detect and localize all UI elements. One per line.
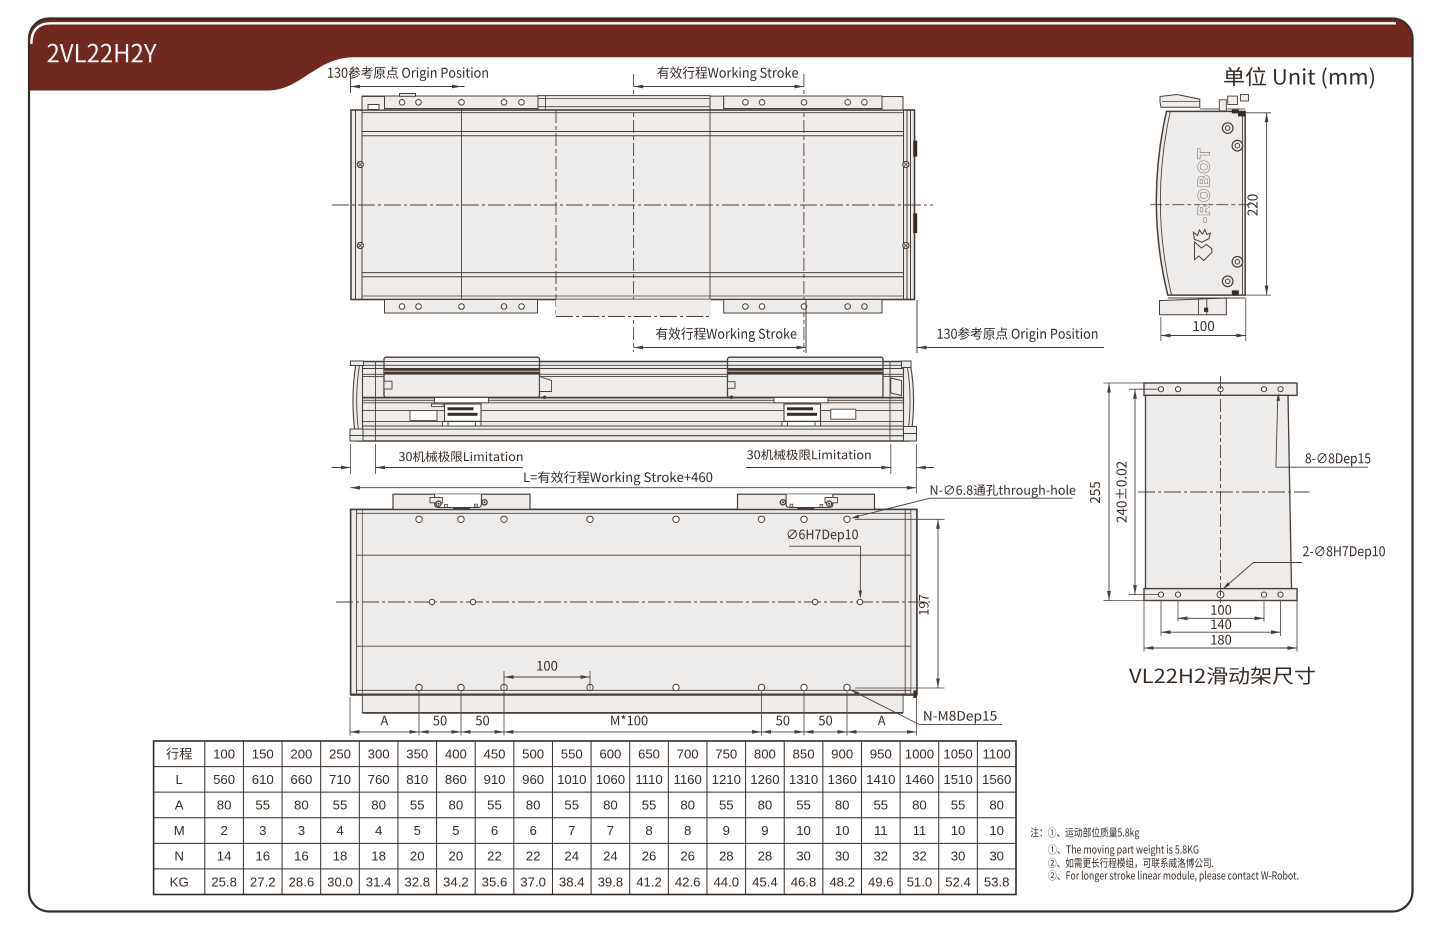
- svg-text:80: 80: [217, 798, 232, 813]
- svg-text:80: 80: [294, 798, 309, 813]
- svg-text:100: 100: [213, 746, 235, 761]
- svg-text:45.4: 45.4: [752, 874, 778, 889]
- svg-text:55: 55: [951, 798, 966, 813]
- svg-text:28: 28: [719, 849, 734, 864]
- svg-text:1160: 1160: [673, 772, 701, 787]
- svg-text:1310: 1310: [789, 772, 818, 787]
- svg-text:1000: 1000: [905, 746, 934, 761]
- svg-text:10: 10: [989, 823, 1004, 838]
- svg-text:6: 6: [491, 823, 498, 838]
- svg-text:960: 960: [522, 772, 544, 787]
- svg-text:37.0: 37.0: [520, 874, 546, 889]
- svg-text:26: 26: [642, 849, 657, 864]
- svg-text:38.4: 38.4: [559, 874, 585, 889]
- svg-text:35.6: 35.6: [482, 874, 508, 889]
- svg-text:52.4: 52.4: [945, 874, 971, 889]
- svg-text:860: 860: [445, 772, 467, 787]
- svg-text:80: 80: [758, 798, 773, 813]
- svg-text:300: 300: [368, 746, 390, 761]
- svg-text:1410: 1410: [866, 772, 895, 787]
- svg-text:200: 200: [290, 746, 312, 761]
- svg-text:42.6: 42.6: [675, 874, 701, 889]
- svg-text:11: 11: [874, 823, 888, 838]
- svg-text:80: 80: [526, 798, 541, 813]
- svg-text:1060: 1060: [596, 772, 625, 787]
- svg-text:350: 350: [406, 746, 428, 761]
- svg-text:550: 550: [561, 746, 583, 761]
- svg-text:810: 810: [406, 772, 428, 787]
- svg-text:-ROBOT: -ROBOT: [1195, 147, 1214, 223]
- svg-text:55: 55: [333, 798, 348, 813]
- svg-text:710: 710: [329, 772, 351, 787]
- svg-text:8: 8: [684, 823, 691, 838]
- svg-text:32: 32: [912, 849, 927, 864]
- svg-text:80: 80: [912, 798, 927, 813]
- svg-text:55: 55: [410, 798, 425, 813]
- svg-text:51.0: 51.0: [907, 874, 933, 889]
- svg-text:560: 560: [213, 772, 235, 787]
- svg-text:10: 10: [796, 823, 811, 838]
- svg-text:18: 18: [333, 849, 348, 864]
- svg-text:10: 10: [951, 823, 966, 838]
- svg-text:700: 700: [677, 746, 699, 761]
- svg-text:750: 750: [715, 746, 737, 761]
- svg-text:610: 610: [252, 772, 274, 787]
- svg-text:49.6: 49.6: [868, 874, 894, 889]
- svg-text:7: 7: [568, 823, 575, 838]
- svg-text:1210: 1210: [712, 772, 741, 787]
- svg-text:28: 28: [758, 849, 773, 864]
- svg-text:1360: 1360: [827, 772, 856, 787]
- svg-text:500: 500: [522, 746, 544, 761]
- svg-text:80: 80: [680, 798, 695, 813]
- svg-text:250: 250: [329, 746, 351, 761]
- svg-text:53.8: 53.8: [984, 874, 1010, 889]
- svg-text:20: 20: [449, 849, 464, 864]
- svg-text:5: 5: [452, 823, 459, 838]
- svg-text:2: 2: [220, 823, 227, 838]
- svg-text:24: 24: [564, 849, 579, 864]
- svg-text:150: 150: [252, 746, 274, 761]
- svg-text:9: 9: [761, 823, 768, 838]
- svg-text:910: 910: [484, 772, 506, 787]
- svg-text:850: 850: [793, 746, 815, 761]
- svg-text:11: 11: [913, 823, 927, 838]
- svg-text:760: 760: [368, 772, 390, 787]
- svg-text:KG: KG: [170, 874, 189, 889]
- svg-text:55: 55: [564, 798, 579, 813]
- svg-text:22: 22: [487, 849, 502, 864]
- svg-text:55: 55: [796, 798, 811, 813]
- svg-text:800: 800: [754, 746, 776, 761]
- svg-text:30: 30: [989, 849, 1004, 864]
- svg-text:1460: 1460: [905, 772, 934, 787]
- svg-text:450: 450: [484, 746, 506, 761]
- svg-text:14: 14: [217, 849, 232, 864]
- svg-text:22: 22: [526, 849, 541, 864]
- svg-text:9: 9: [723, 823, 730, 838]
- svg-text:N: N: [174, 849, 184, 864]
- svg-text:44.0: 44.0: [713, 874, 739, 889]
- svg-text:L: L: [176, 772, 183, 787]
- svg-text:M: M: [174, 823, 185, 838]
- svg-text:900: 900: [831, 746, 853, 761]
- svg-text:48.2: 48.2: [829, 874, 855, 889]
- svg-text:26: 26: [680, 849, 695, 864]
- svg-text:27.2: 27.2: [250, 874, 276, 889]
- svg-text:80: 80: [449, 798, 464, 813]
- svg-text:1110: 1110: [635, 772, 662, 787]
- svg-text:80: 80: [371, 798, 386, 813]
- svg-text:16: 16: [255, 849, 270, 864]
- svg-text:8: 8: [645, 823, 652, 838]
- svg-text:55: 55: [642, 798, 657, 813]
- svg-text:80: 80: [989, 798, 1004, 813]
- svg-text:400: 400: [445, 746, 467, 761]
- svg-text:7: 7: [607, 823, 614, 838]
- svg-text:3: 3: [259, 823, 266, 838]
- svg-text:20: 20: [410, 849, 425, 864]
- svg-text:46.8: 46.8: [791, 874, 817, 889]
- svg-text:55: 55: [255, 798, 270, 813]
- svg-text:80: 80: [603, 798, 618, 813]
- svg-text:1510: 1510: [943, 772, 972, 787]
- svg-text:39.8: 39.8: [598, 874, 624, 889]
- svg-text:4: 4: [375, 823, 382, 838]
- svg-text:1260: 1260: [750, 772, 779, 787]
- svg-text:A: A: [175, 798, 184, 813]
- svg-text:25.8: 25.8: [211, 874, 237, 889]
- svg-text:650: 650: [638, 746, 660, 761]
- svg-text:28.6: 28.6: [289, 874, 315, 889]
- svg-text:10: 10: [835, 823, 850, 838]
- svg-text:1100: 1100: [983, 746, 1011, 761]
- svg-text:30: 30: [951, 849, 966, 864]
- svg-text:80: 80: [835, 798, 850, 813]
- svg-text:55: 55: [719, 798, 734, 813]
- svg-text:31.4: 31.4: [366, 874, 392, 889]
- svg-text:24: 24: [603, 849, 618, 864]
- svg-text:3: 3: [298, 823, 305, 838]
- svg-text:1560: 1560: [982, 772, 1011, 787]
- svg-text:30: 30: [796, 849, 811, 864]
- svg-text:30: 30: [835, 849, 850, 864]
- svg-text:32: 32: [873, 849, 888, 864]
- svg-text:16: 16: [294, 849, 309, 864]
- svg-text:600: 600: [599, 746, 621, 761]
- svg-text:55: 55: [873, 798, 888, 813]
- svg-text:1050: 1050: [943, 746, 972, 761]
- svg-text:18: 18: [371, 849, 386, 864]
- svg-text:4: 4: [336, 823, 343, 838]
- svg-text:34.2: 34.2: [443, 874, 469, 889]
- svg-text:1010: 1010: [557, 772, 586, 787]
- svg-text:55: 55: [487, 798, 502, 813]
- svg-text:32.8: 32.8: [404, 874, 430, 889]
- svg-text:950: 950: [870, 746, 892, 761]
- svg-text:5: 5: [414, 823, 421, 838]
- svg-text:41.2: 41.2: [636, 874, 662, 889]
- svg-text:30.0: 30.0: [327, 874, 353, 889]
- svg-text:660: 660: [290, 772, 312, 787]
- svg-text:6: 6: [529, 823, 536, 838]
